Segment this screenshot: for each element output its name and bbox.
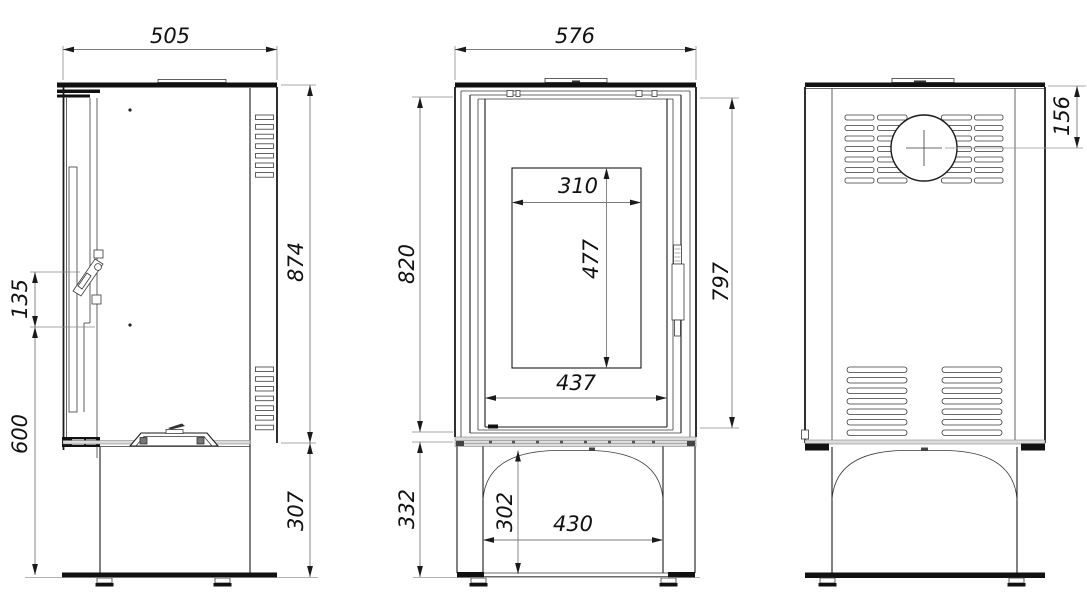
side-vent-grille-upper — [256, 115, 274, 177]
side-view — [25, 80, 318, 587]
dim-label-side-depth: 505 — [150, 24, 190, 48]
dim-label-base-clearance: 302 — [493, 492, 517, 532]
dim-label-handle-to-floor: 600 — [8, 414, 32, 454]
side-view-dimensions: 505 874 307 135 600 — [8, 24, 316, 577]
door-handle-side — [73, 250, 103, 304]
back-view — [802, 79, 1084, 587]
latch-clip — [802, 430, 809, 439]
dim-label-glass-width: 310 — [558, 174, 598, 198]
dim-label-door-height: 797 — [709, 261, 733, 302]
dim-label-front-width: 576 — [555, 24, 595, 48]
side-vent-grille-lower — [256, 367, 274, 430]
top-plate-strip — [158, 80, 226, 83]
dim-label-flue-offset: 156 — [1050, 96, 1074, 136]
dim-label-door-opening-width: 437 — [556, 371, 597, 395]
front-view — [413, 79, 700, 587]
door-handle-front — [672, 245, 684, 336]
dim-label-front-base-height: 332 — [395, 489, 419, 529]
dim-label-handle-span: 135 — [8, 279, 32, 319]
damper-lever — [130, 424, 218, 447]
stove-dimension-drawing: 505 874 307 135 600 — [0, 0, 1087, 608]
dim-label-glass-height: 477 — [579, 238, 603, 279]
dim-label-side-body-height: 874 — [284, 242, 308, 282]
dim-label-base-opening-width: 430 — [553, 512, 593, 536]
drawing-page: 505 874 307 135 600 — [0, 0, 1087, 608]
dim-label-front-body-height: 820 — [395, 244, 419, 284]
base-back — [805, 440, 1045, 587]
back-view-dimensions: 156 — [1048, 86, 1086, 148]
tray-front — [455, 437, 696, 447]
dim-label-side-base-height: 307 — [284, 490, 308, 531]
glass-window — [512, 168, 641, 368]
back-vent-grille-lower — [847, 367, 1002, 436]
